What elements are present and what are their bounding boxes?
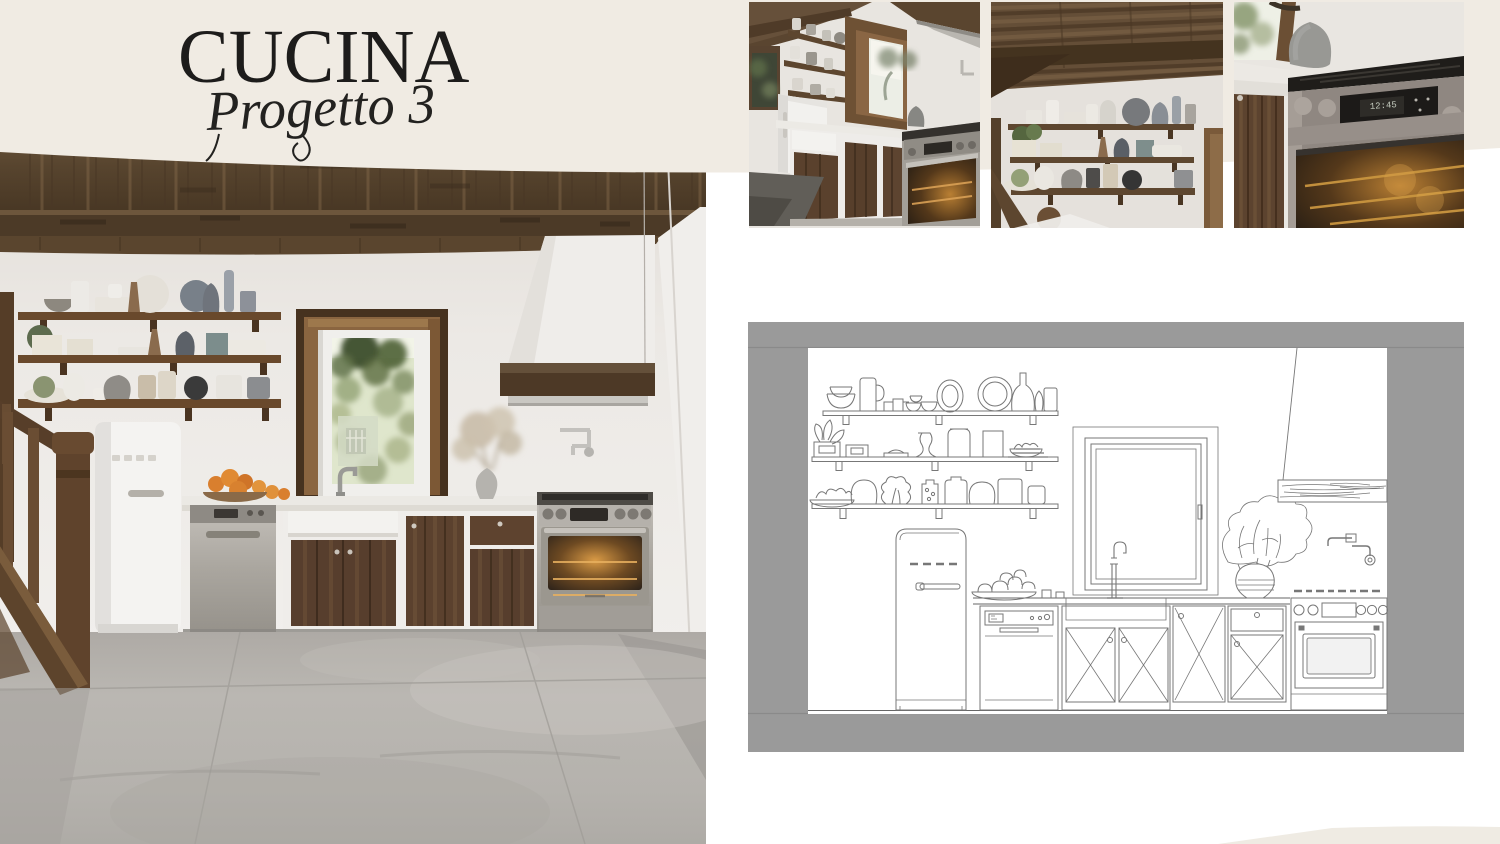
svg-text:12:45: 12:45 xyxy=(1370,100,1398,112)
svg-text:Progetto 3: Progetto 3 xyxy=(204,73,436,143)
